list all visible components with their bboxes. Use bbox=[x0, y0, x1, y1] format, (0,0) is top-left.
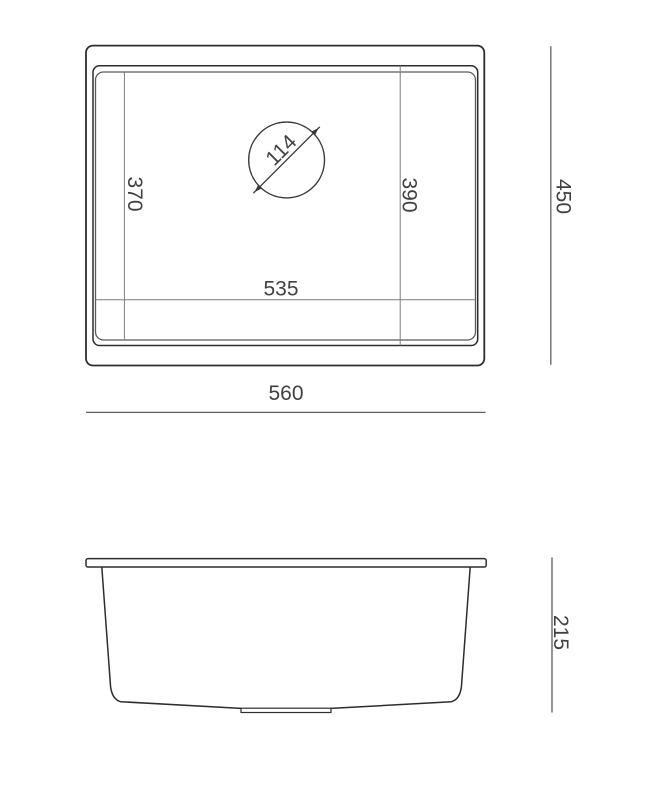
svg-text:370: 370 bbox=[123, 176, 146, 211]
svg-text:535: 535 bbox=[263, 278, 298, 301]
svg-text:215: 215 bbox=[549, 615, 572, 650]
svg-text:390: 390 bbox=[398, 177, 421, 212]
svg-text:560: 560 bbox=[268, 382, 303, 405]
svg-text:450: 450 bbox=[552, 179, 575, 214]
